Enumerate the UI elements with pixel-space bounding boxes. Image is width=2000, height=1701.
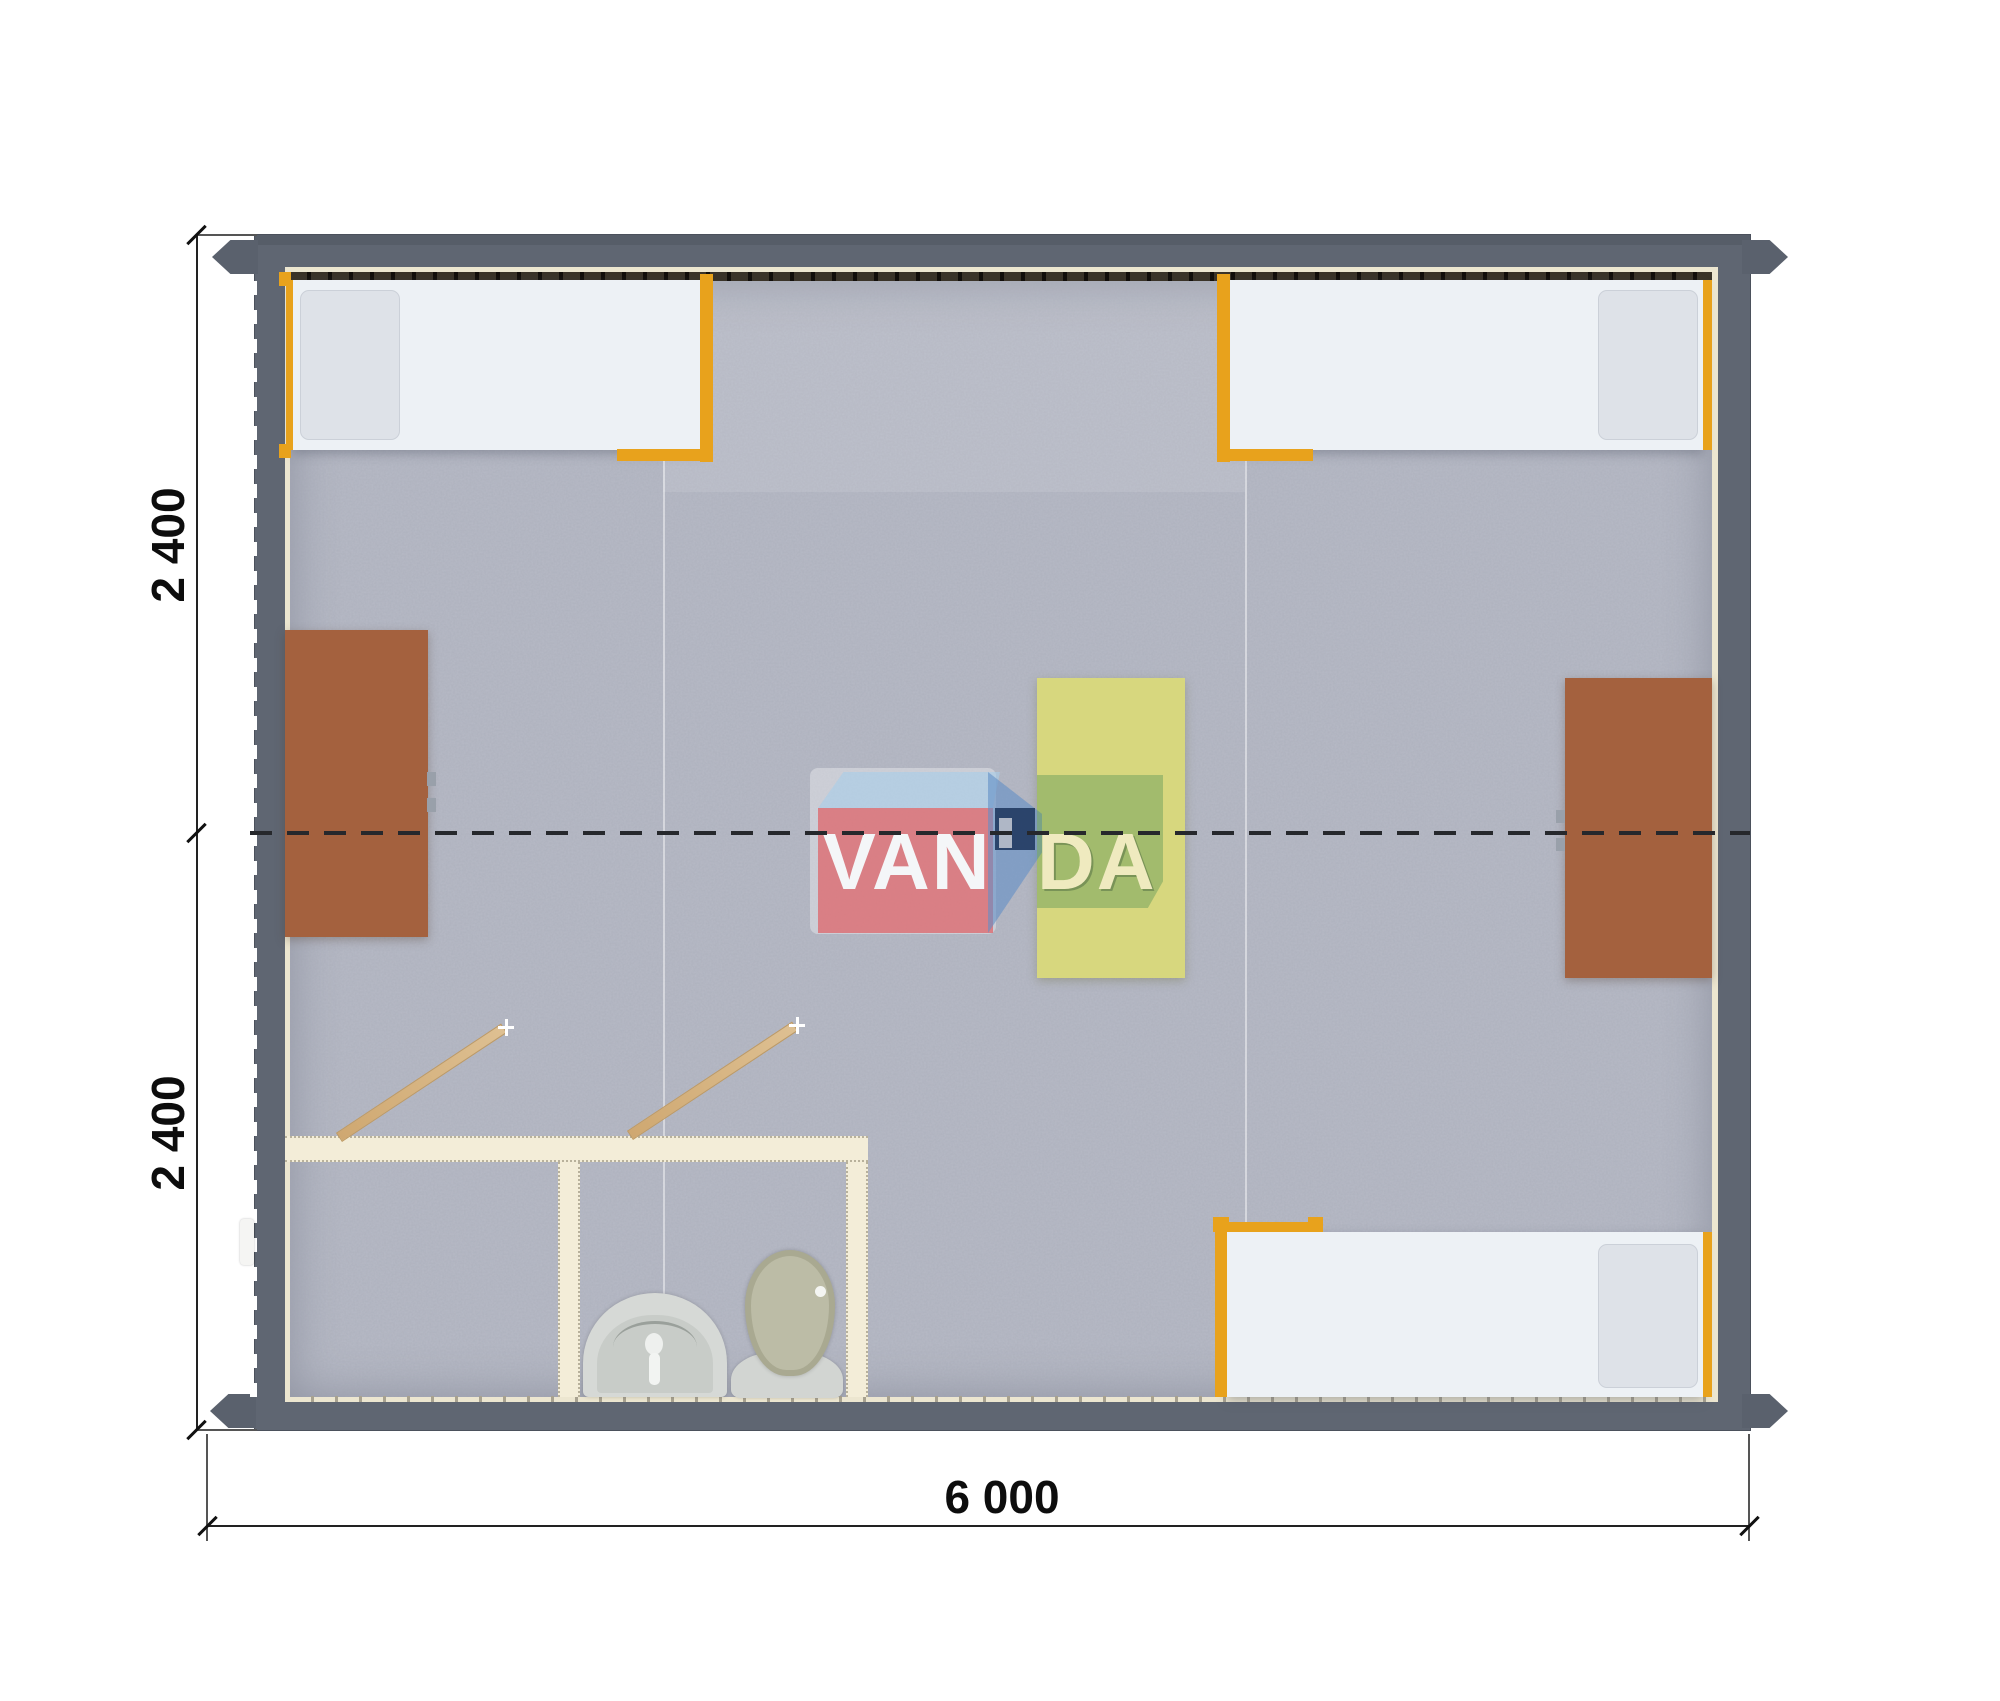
desk-knob bbox=[1556, 838, 1565, 851]
floor-plan-canvas: VAN DA 2 400 2 400 6 000 bbox=[0, 0, 2000, 1701]
door-hinge-mark bbox=[796, 1017, 799, 1034]
desk-right bbox=[1565, 678, 1712, 978]
desk-knob bbox=[427, 798, 436, 812]
dimension-line-horizontal bbox=[207, 1525, 1750, 1527]
bed-frame-rail bbox=[1217, 449, 1313, 461]
faucet-handle bbox=[649, 1353, 660, 1385]
bed-frame-footboard bbox=[700, 274, 713, 462]
desk-knob bbox=[427, 772, 436, 786]
bed-frame-rail bbox=[1213, 1222, 1323, 1232]
pillow bbox=[300, 290, 400, 440]
bed-bottom-right bbox=[1227, 1232, 1703, 1397]
door-hinge-mark bbox=[505, 1019, 508, 1036]
desk-left bbox=[285, 630, 428, 937]
bed-frame-tab bbox=[1308, 1217, 1323, 1232]
bed-frame-tab bbox=[279, 444, 291, 458]
dimension-label-2400-bottom: 2 400 bbox=[143, 1038, 193, 1228]
dimension-label-2400-top: 2 400 bbox=[143, 450, 193, 640]
pillow bbox=[1598, 1244, 1698, 1388]
bed-frame-footboard bbox=[1215, 1222, 1227, 1397]
pillow bbox=[1598, 290, 1698, 440]
bed-frame-head-strip bbox=[286, 280, 293, 450]
bathroom-wall-divider bbox=[558, 1162, 580, 1397]
bed-frame-head-strip bbox=[1703, 1232, 1712, 1397]
faucet bbox=[645, 1333, 663, 1355]
bathroom-wall-right bbox=[846, 1162, 868, 1397]
toilet-highlight bbox=[815, 1286, 826, 1297]
extension-line bbox=[196, 234, 257, 236]
bed-frame-head-strip bbox=[1703, 280, 1712, 450]
desk-knob bbox=[1556, 810, 1565, 823]
bed-frame-footboard bbox=[1217, 274, 1230, 462]
module-centerline bbox=[250, 831, 1750, 835]
corner-trim-top-left bbox=[212, 240, 258, 274]
bed-frame-rail bbox=[617, 449, 713, 461]
logo-top-face bbox=[818, 772, 1000, 808]
toilet-seat bbox=[745, 1250, 835, 1376]
corner-trim-top-right bbox=[1742, 240, 1788, 274]
corner-trim-bottom-right bbox=[1742, 1394, 1788, 1428]
bed-top-right bbox=[1230, 280, 1703, 450]
bed-frame-tab bbox=[279, 272, 291, 286]
corner-trim-bottom-left bbox=[210, 1394, 256, 1428]
carpet-tile-highlight bbox=[663, 281, 1245, 492]
bathroom-wall-top bbox=[285, 1136, 868, 1162]
extension-line bbox=[196, 1429, 257, 1431]
left-wall-door-hinge bbox=[240, 1219, 254, 1265]
dimension-label-6000: 6 000 bbox=[907, 1472, 1097, 1522]
bed-top-left bbox=[293, 280, 700, 450]
